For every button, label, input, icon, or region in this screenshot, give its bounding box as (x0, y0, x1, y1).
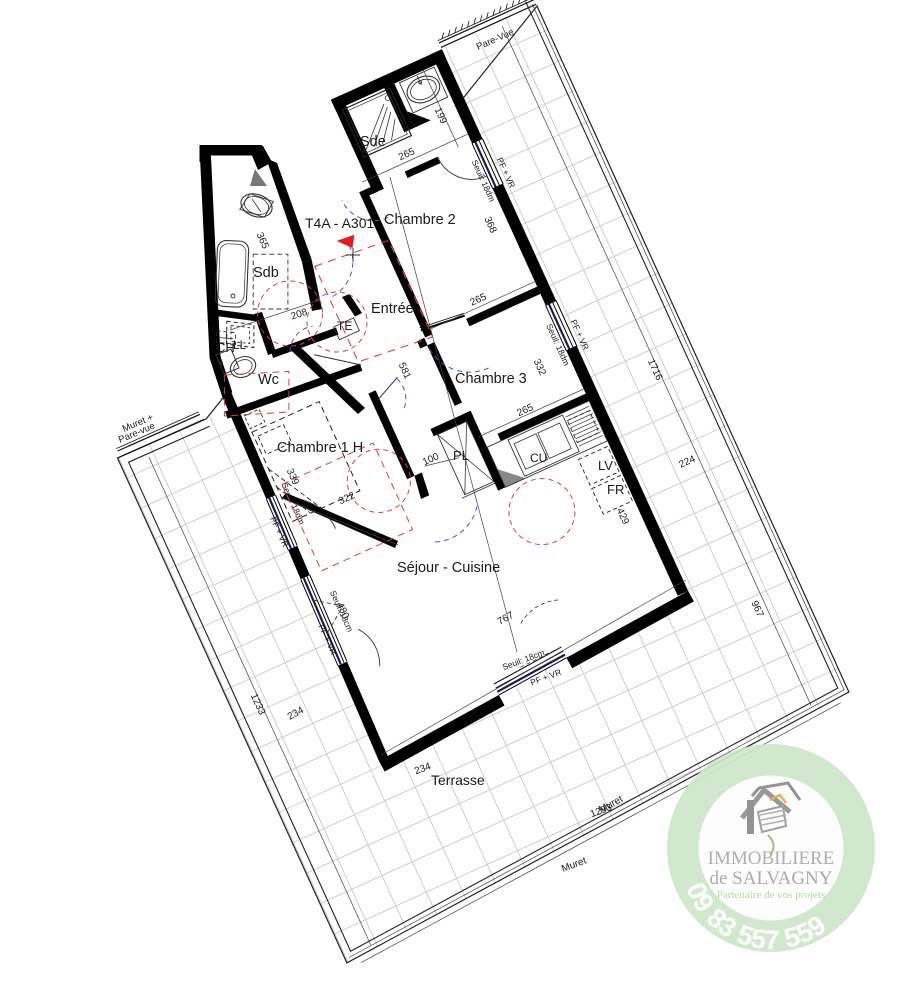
svg-text:de SALVAGNY: de SALVAGNY (710, 868, 833, 889)
svg-text:Chambre 1 H: Chambre 1 H (277, 440, 363, 456)
svg-text:LL: LL (233, 338, 247, 352)
svg-text:Wc: Wc (258, 372, 279, 388)
svg-text:LV: LV (598, 458, 613, 473)
svg-text:CU: CU (530, 451, 547, 465)
svg-text:T4A - A301: T4A - A301 (305, 215, 374, 231)
svg-text:Entrée: Entrée (371, 301, 414, 317)
svg-text:Terrasse: Terrasse (431, 772, 485, 788)
svg-text:IMMOBILIERE: IMMOBILIERE (708, 848, 835, 869)
svg-text:Partenaire de vos projets: Partenaire de vos projets (717, 889, 825, 901)
svg-text:Chambre 2: Chambre 2 (384, 212, 456, 228)
svg-text:FR: FR (607, 482, 624, 497)
svg-text:Chambre 3: Chambre 3 (455, 371, 527, 387)
svg-text:Sdb: Sdb (253, 265, 279, 281)
svg-text:Séjour - Cuisine: Séjour - Cuisine (397, 560, 500, 576)
svg-text:PL: PL (453, 448, 469, 463)
svg-text:Sde: Sde (360, 134, 386, 150)
svg-text:CH: CH (216, 340, 235, 355)
svg-text:TE: TE (337, 319, 352, 333)
